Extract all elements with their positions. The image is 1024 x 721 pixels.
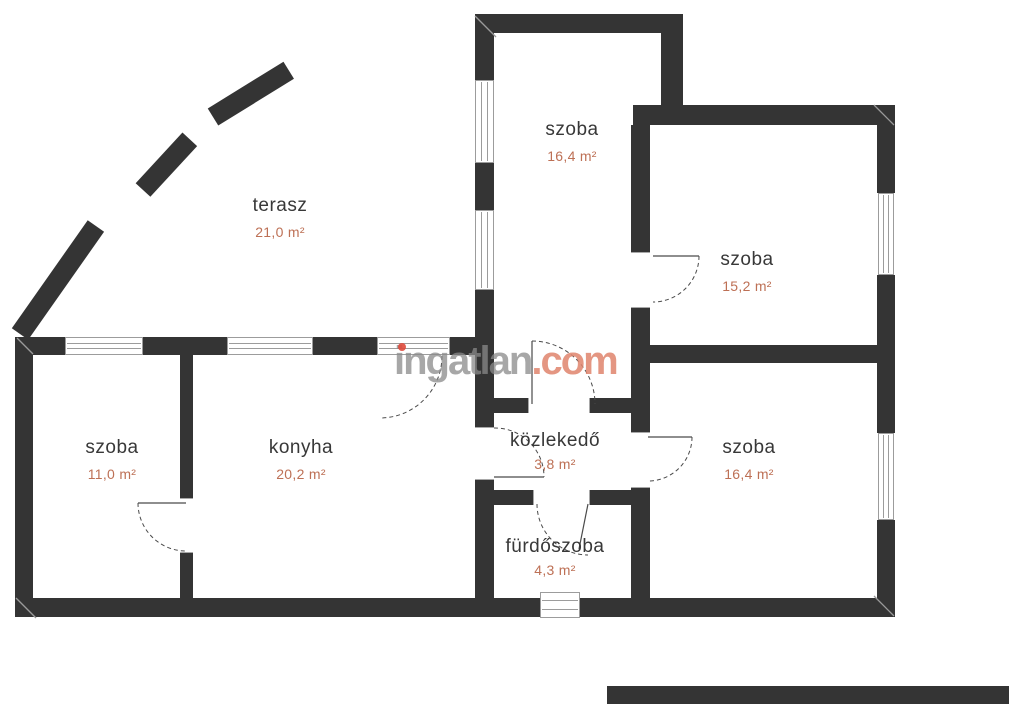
wall-right-1: [877, 105, 895, 193]
terrace-boundary-bar-1: [12, 220, 104, 339]
room-name: szoba: [545, 119, 598, 141]
room-label-konyha: konyha 20,2 m²: [269, 437, 333, 482]
wall-interior-2: [631, 308, 650, 432]
terrace-boundary-bar-3: [208, 62, 294, 126]
room-label-terasz: terasz 21,0 m²: [253, 195, 308, 240]
wall-mid-2: [475, 163, 494, 210]
wall-topszoba-right: [661, 33, 683, 107]
window-szoba-right: [878, 193, 894, 275]
wall-right-2: [877, 275, 895, 433]
room-name: terasz: [253, 195, 308, 217]
window-szoba-bottom: [878, 433, 894, 520]
wall-kozlekedo-top-2: [590, 398, 631, 413]
wall-mid-4: [475, 480, 494, 598]
door-arc-szoba-left: [138, 503, 186, 551]
room-name: konyha: [269, 437, 333, 459]
wall-left: [15, 337, 33, 617]
door-opening-szoba-left: [180, 498, 193, 553]
wall-south-1: [15, 337, 65, 355]
wall-divider-1: [180, 355, 193, 498]
room-area: 3,8 m²: [510, 456, 600, 472]
wall-interior-3: [631, 488, 650, 598]
wall-south-2: [143, 337, 227, 355]
wall-divider-2: [180, 553, 193, 598]
room-area: 11,0 m²: [85, 466, 138, 482]
watermark-brand: ingatlan: [394, 339, 531, 383]
door-arc-kozlekedo-szoba: [648, 437, 692, 481]
door-arc-szoba-right: [653, 256, 699, 302]
wall-kozlekedo-bottom-2: [590, 490, 631, 505]
room-name: szoba: [85, 437, 138, 459]
room-area: 20,2 m²: [269, 466, 333, 482]
wall-topszoba-top: [475, 14, 683, 33]
window-szoba-left: [65, 337, 143, 355]
wall-right-3: [877, 520, 895, 598]
window-szoba-top-1: [475, 80, 494, 163]
room-name: közlekedő: [510, 430, 600, 452]
watermark: ingatlan.com: [394, 341, 617, 381]
wall-kozlekedo-bottom-1: [494, 490, 533, 505]
terrace-boundary-bar-2: [136, 133, 197, 197]
room-name: szoba: [722, 437, 775, 459]
room-label-furdoszoba: fürdőszoba 4,3 m²: [505, 536, 604, 578]
door-opening-furdoszoba: [533, 490, 590, 505]
room-label-szoba-top: szoba 16,4 m²: [545, 119, 598, 164]
door-opening-kozlekedo-szoba: [631, 432, 650, 488]
room-area: 16,4 m²: [545, 148, 598, 164]
room-area: 21,0 m²: [253, 224, 308, 240]
room-area: 15,2 m²: [720, 278, 773, 294]
room-area: 16,4 m²: [722, 466, 775, 482]
window-szoba-top-2: [475, 210, 494, 290]
watermark-i-dot: [398, 343, 406, 351]
scale-bar: [607, 686, 1009, 704]
room-label-kozlekedo: közlekedő 3,8 m²: [510, 430, 600, 472]
window-furdoszoba: [540, 592, 580, 618]
watermark-tld: .com: [531, 339, 616, 383]
room-label-szoba-left: szoba 11,0 m²: [85, 437, 138, 482]
floor-plan: ingatlan.com terasz 21,0 m² szoba 16,4 m…: [0, 0, 1024, 721]
room-name: szoba: [720, 249, 773, 271]
room-label-szoba-bottom: szoba 16,4 m²: [722, 437, 775, 482]
wall-bottom: [15, 598, 895, 617]
wall-szoba152-bottom: [650, 345, 877, 363]
wall-south-3: [313, 337, 377, 355]
window-konyha: [227, 337, 313, 355]
room-name: fürdőszoba: [505, 536, 604, 558]
wall-interior-1: [631, 125, 650, 252]
room-area: 4,3 m²: [505, 562, 604, 578]
wall-kozlekedo-top-1: [494, 398, 528, 413]
room-label-szoba-right: szoba 15,2 m²: [720, 249, 773, 294]
door-opening-konyha-kozlekedo: [475, 427, 494, 480]
door-opening-szoba-top-right: [631, 252, 650, 308]
door-opening-szoba-top-kozlekedo: [528, 398, 590, 413]
wall-north-band: [633, 105, 895, 125]
